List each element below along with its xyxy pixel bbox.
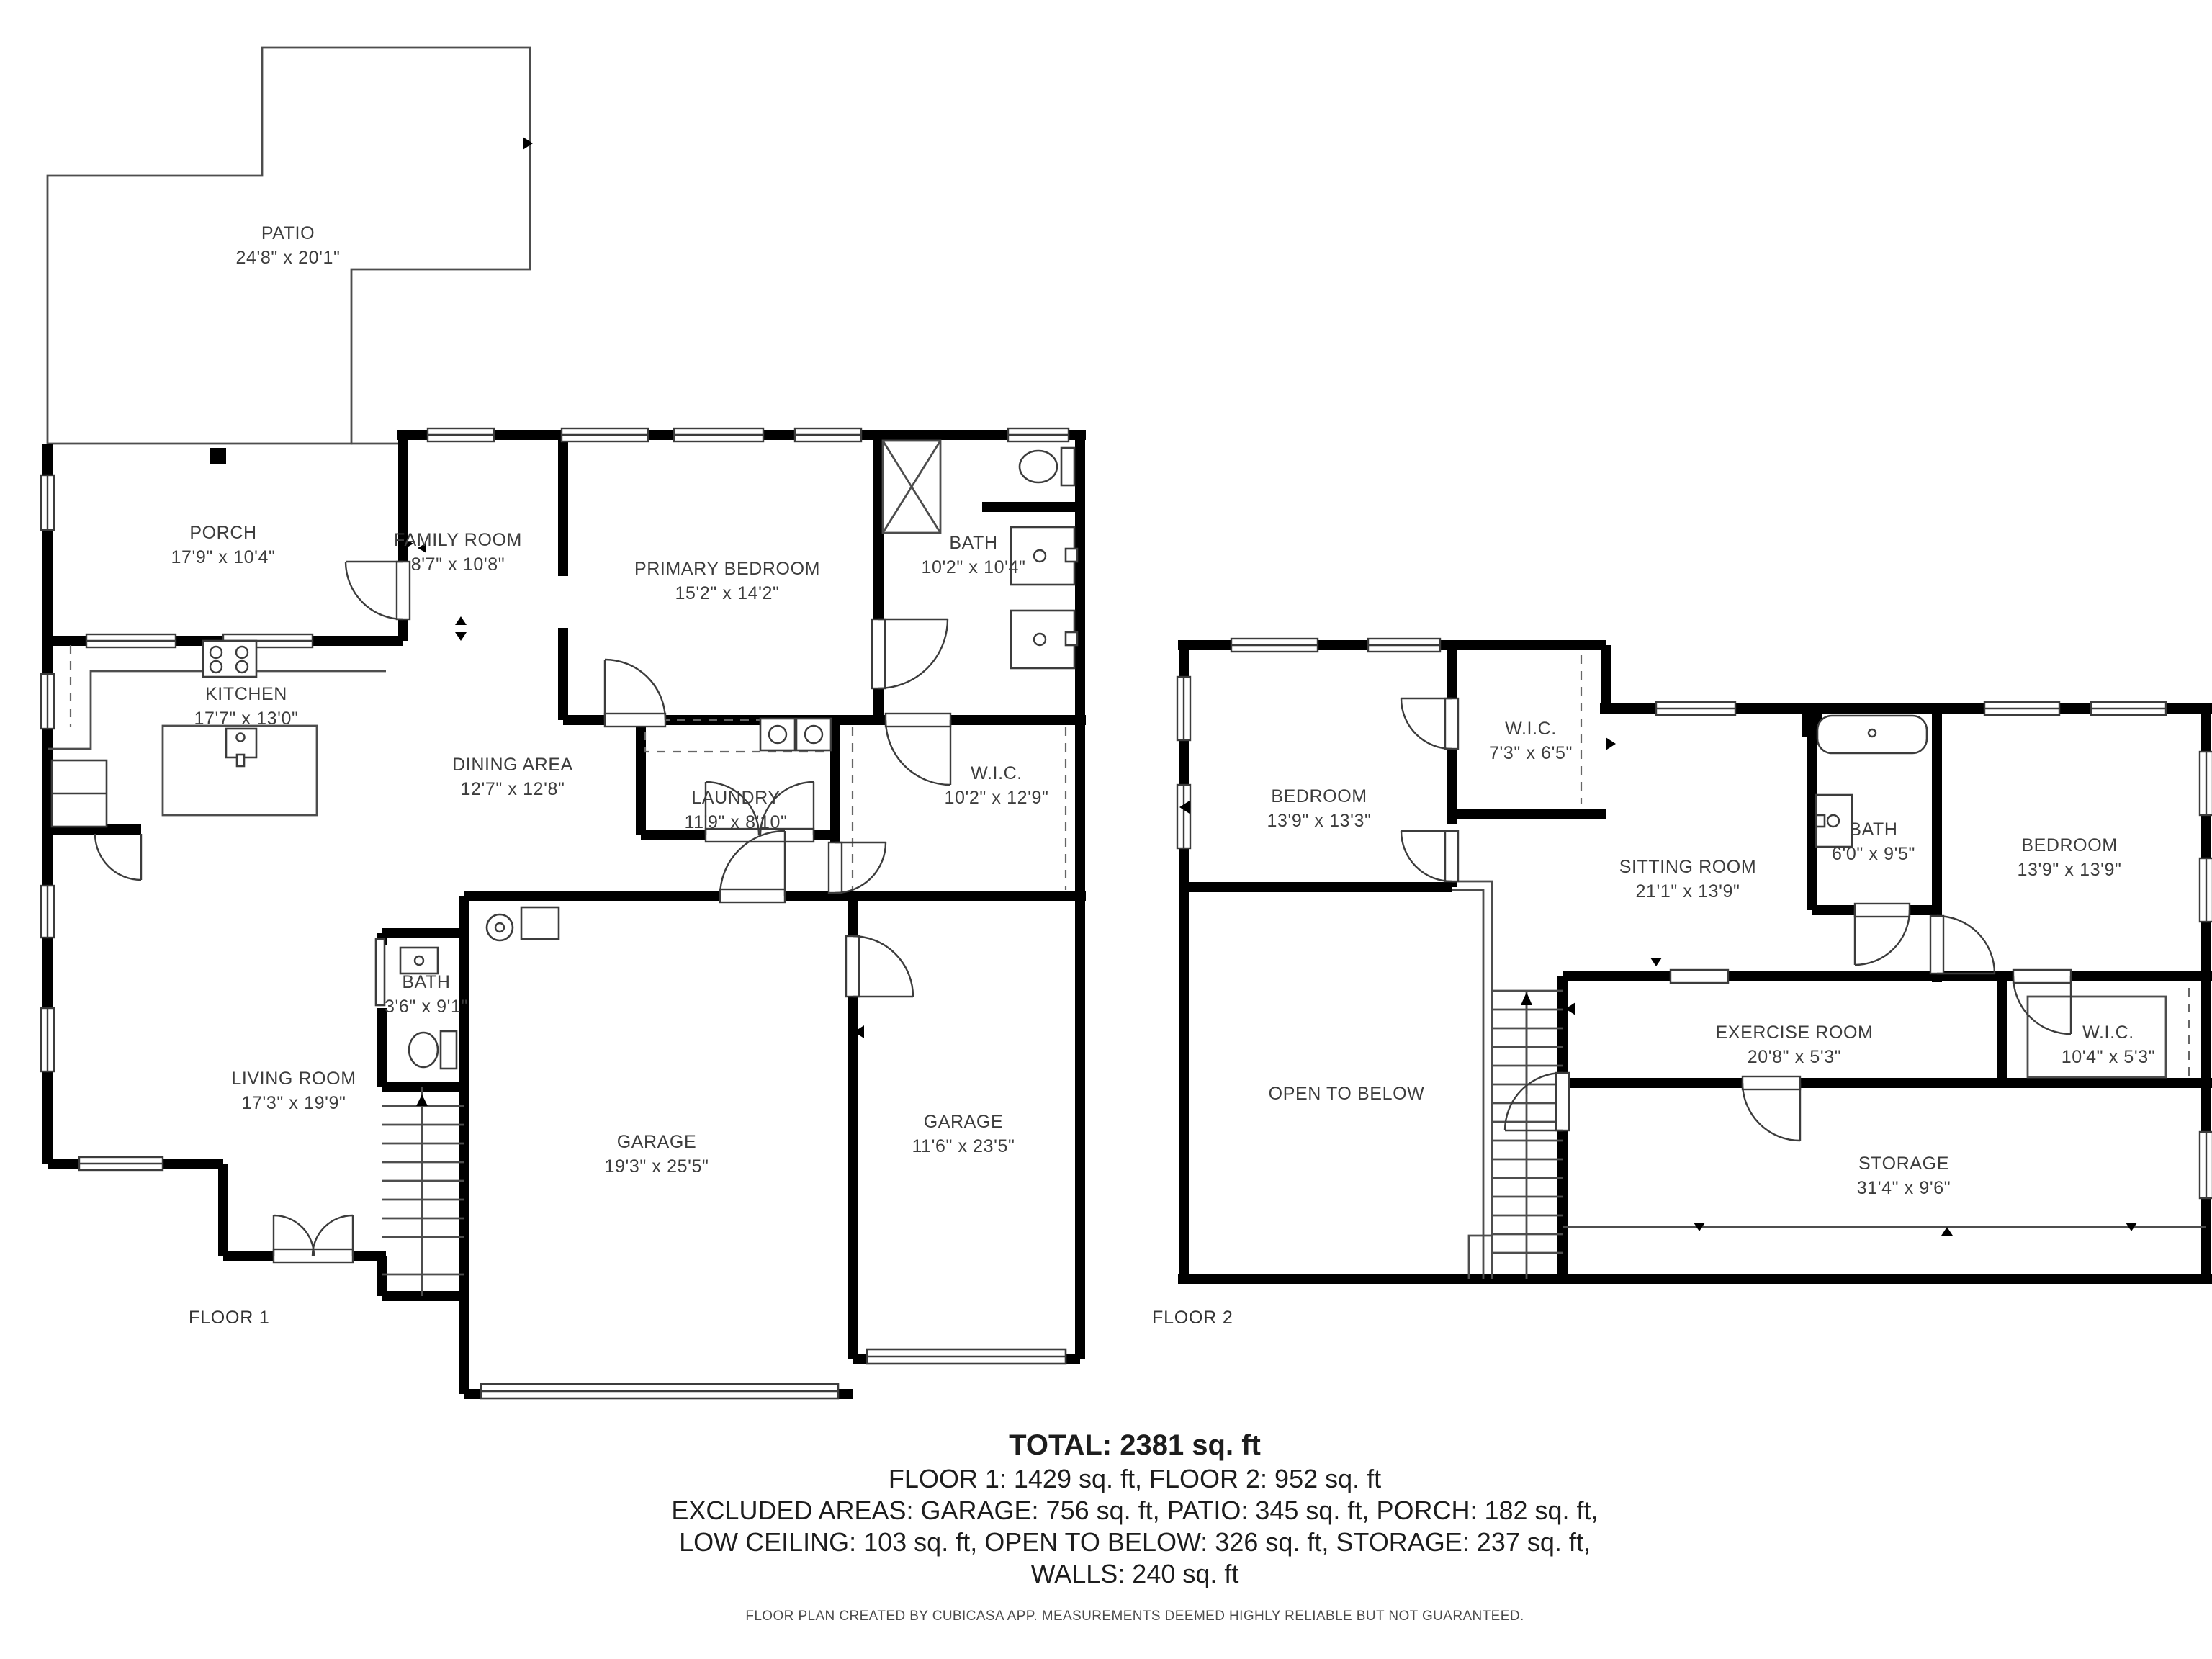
room-label-bath2: BATH 3'6" x 9'1" <box>385 971 468 1020</box>
room-label-kitchen: KITCHEN 17'7" x 13'0" <box>194 683 299 732</box>
room-label-sitting-room: SITTING ROOM 21'1" x 13'9" <box>1619 855 1757 904</box>
room-label-laundry: LAUNDRY 11'9" x 8'10" <box>684 786 787 835</box>
utility-sink-icon <box>521 907 559 939</box>
room-label-wic2-floor2: W.I.C. 10'4" x 5'3" <box>2062 1021 2155 1070</box>
area-summary: TOTAL: 2381 sq. ft FLOOR 1: 1429 sq. ft,… <box>29 1429 2212 1590</box>
floorplan-stage: PATIO 24'8" x 20'1" PORCH 17'9" x 10'4" … <box>0 0 2212 1659</box>
disclaimer: FLOOR PLAN CREATED BY CUBICASA APP. MEAS… <box>29 1609 2212 1624</box>
room-label-garage1: GARAGE 19'3" x 25'5" <box>605 1130 709 1179</box>
room-label-garage2: GARAGE 11'6" x 23'5" <box>912 1110 1015 1159</box>
toilet-icon <box>441 1031 457 1069</box>
bathtub-icon <box>1817 716 1927 753</box>
excluded-areas-1: EXCLUDED AREAS: GARAGE: 756 sq. ft, PATI… <box>29 1495 2212 1527</box>
room-label-open-to-below: OPEN TO BELOW <box>1269 1082 1425 1107</box>
porch-post <box>210 448 226 464</box>
room-label-family-room: FAMILY ROOM 8'7" x 10'8" <box>394 529 522 577</box>
wall-marker-icon <box>523 137 533 150</box>
floor-areas: FLOOR 1: 1429 sq. ft, FLOOR 2: 952 sq. f… <box>29 1463 2212 1495</box>
stairs-floor1 <box>382 1087 464 1296</box>
stair-railing <box>1452 881 1492 1279</box>
room-label-bath3: BATH 6'0" x 9'5" <box>1832 818 1915 867</box>
stove-icon <box>203 641 256 677</box>
windows-floor2 <box>1177 639 2212 1198</box>
room-label-bedroom2: BEDROOM 13'9" x 13'9" <box>2018 834 2122 883</box>
room-label-bath1: BATH 10'2" x 10'4" <box>922 531 1026 580</box>
room-label-wic1-floor2: W.I.C. 7'3" x 6'5" <box>1489 717 1573 766</box>
sink-icon <box>400 948 438 974</box>
room-label-patio: PATIO 24'8" x 20'1" <box>236 222 341 271</box>
floor1-label: FLOOR 1 <box>189 1308 270 1328</box>
floor2-plan <box>1177 639 2212 1279</box>
room-label-living-room: LIVING ROOM 17'3" x 19'9" <box>231 1067 356 1116</box>
walls-area: WALLS: 240 sq. ft <box>29 1558 2212 1590</box>
room-label-bedroom1: BEDROOM 13'9" x 13'3" <box>1267 785 1372 834</box>
room-label-storage: STORAGE 31'4" x 9'6" <box>1857 1152 1951 1201</box>
room-label-porch: PORCH 17'9" x 10'4" <box>171 521 276 570</box>
floorplan-page: PATIO 24'8" x 20'1" PORCH 17'9" x 10'4" … <box>0 0 2212 1659</box>
washer-icon <box>760 719 795 750</box>
pocket-door <box>376 939 385 1005</box>
room-label-dining-area: DINING AREA 12'7" x 12'8" <box>452 753 573 802</box>
excluded-areas-2: LOW CEILING: 103 sq. ft, OPEN TO BELOW: … <box>29 1527 2212 1558</box>
room-label-exercise-room: EXERCISE ROOM 20'8" x 5'3" <box>1716 1021 1874 1070</box>
water-heater-icon <box>487 914 513 940</box>
room-label-wic-floor1: W.I.C. 10'2" x 12'9" <box>945 762 1049 811</box>
floor2-label: FLOOR 2 <box>1152 1308 1233 1328</box>
total-area: TOTAL: 2381 sq. ft <box>29 1429 2212 1463</box>
kitchen-fixtures <box>48 641 386 827</box>
room-label-primary-bedroom: PRIMARY BEDROOM 15'2" x 14'2" <box>634 557 820 606</box>
toilet-icon <box>1061 448 1074 485</box>
dryer-icon <box>796 719 831 750</box>
